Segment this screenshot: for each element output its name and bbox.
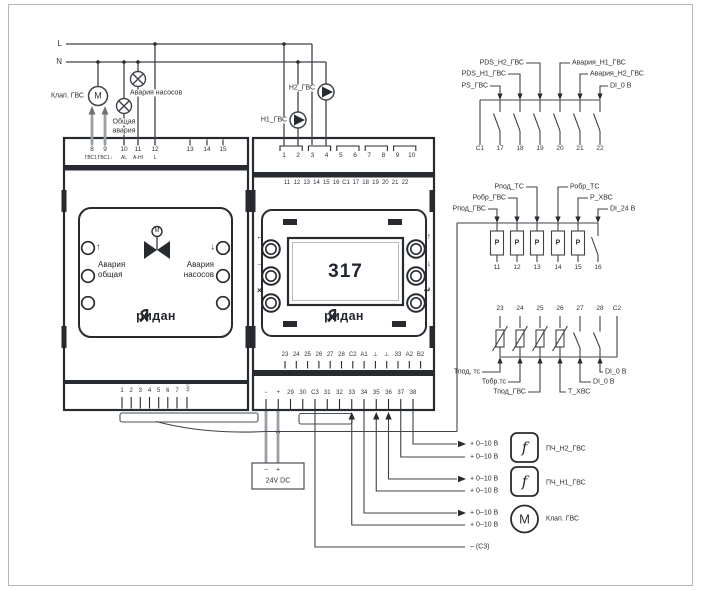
common-alarm-lamp-label-2: авария: [111, 128, 136, 135]
terminal-number: 18: [516, 146, 523, 153]
terminal-number: 6: [353, 153, 357, 160]
alarm-common-led-label-2: общая: [98, 271, 122, 279]
left-module-brand-logo: ридан: [136, 309, 176, 323]
terminal-number: 15: [574, 265, 581, 272]
pump-h1-label: H1_ГВС: [260, 117, 288, 124]
label-di-24v: DI_24 В: [610, 206, 635, 213]
label-tobr-ts: Тобр.тс: [482, 379, 506, 386]
vfd-h2-symbol: f: [522, 440, 528, 455]
terminal-number: 38: [410, 390, 417, 396]
terminal-number: 25: [536, 306, 543, 313]
right-terminal-cover-bar: [299, 414, 352, 425]
label-pobr-gvs: Робр_ГВС: [473, 195, 506, 202]
valve-output-symbol: M: [519, 513, 530, 526]
pump-alarm-lamp-label: Авария насосов: [129, 90, 183, 97]
output-signal-label: + 0–10 В: [470, 522, 498, 529]
left-terminal-cover-bar: [120, 413, 258, 422]
valve-wire-arrows: [89, 106, 109, 115]
terminal-number: 24: [516, 306, 523, 313]
terminal-number: C3: [311, 390, 319, 396]
terminal-number: 16: [594, 265, 601, 272]
terminal-number: 22: [402, 180, 409, 186]
terminal-number: 25: [304, 352, 311, 358]
output-signal-label: + 0–10 В: [470, 476, 498, 483]
terminal-number: 24: [293, 352, 300, 358]
terminal-number: 23: [282, 352, 289, 358]
terminal-number: 4: [148, 388, 151, 394]
terminal-number: 28: [596, 306, 603, 313]
pressure-sensor-letter: P: [535, 240, 540, 247]
terminal-number: 21: [392, 180, 399, 186]
terminal-number: 11: [284, 180, 290, 186]
terminal-number: L: [154, 156, 157, 161]
common-alarm-lamp-label-1: Общая: [112, 119, 137, 126]
open-arrow: ↑: [96, 243, 101, 252]
terminal-number: +: [276, 390, 280, 396]
pump-icon-h2: [318, 84, 334, 100]
label-tpod-ts: Тпод, тс: [454, 369, 480, 376]
alarm-common-led-label-1: Авария: [98, 261, 125, 269]
terminal-number: 20: [556, 146, 563, 153]
label-alarm-h2-gvs: Авария_H2_ГВС: [590, 71, 644, 78]
output-signal-label: + 0–10 В: [470, 441, 498, 448]
right-arrow-icon[interactable]: →: [256, 259, 265, 268]
terminal-number: 1: [282, 153, 286, 160]
label-p-hvs: P_ХВС: [590, 195, 613, 202]
enter-icon[interactable]: ↵: [424, 286, 431, 295]
ridan-logo-icon: [324, 309, 337, 322]
vfd-h1-symbol: f: [522, 474, 528, 489]
terminal-number: 20: [382, 180, 389, 186]
vfd-h1-label: ПЧ_Н1_ГВС: [546, 479, 586, 486]
terminal-number: 15: [323, 180, 330, 186]
terminal-number: A2: [406, 352, 413, 358]
terminal-number: 17: [352, 180, 359, 186]
pressure-sensor-letter: P: [556, 240, 561, 247]
ridan-logo-icon: [136, 309, 149, 322]
pump-h2-label: H2_ГВС: [288, 85, 316, 92]
terminal-number: 29: [287, 390, 294, 396]
terminal-number: B2: [417, 352, 424, 358]
terminal-number: 13: [303, 180, 310, 186]
alarm-pumps-led-label-2: насосов: [184, 271, 214, 279]
pressure-sensor-letter: P: [515, 240, 520, 247]
terminal-number: 7: [175, 388, 178, 394]
terminal-number: 14: [203, 147, 210, 154]
terminal-number: 5: [339, 153, 343, 160]
display-value: 317: [328, 261, 363, 283]
terminal-number: C1: [342, 180, 350, 186]
lamp-icon-pump-alarm: [131, 72, 146, 87]
up-arrow-icon[interactable]: ↑: [427, 232, 431, 241]
terminal-number: 14: [554, 265, 561, 272]
terminal-number: 17: [496, 146, 503, 153]
pressure-sensor-letter: P: [495, 240, 500, 247]
terminal-number: 8: [90, 147, 94, 154]
terminal-number: 18: [362, 180, 369, 186]
terminal-number: 12: [151, 147, 158, 154]
terminal-number: 19: [536, 146, 543, 153]
terminal-number: 30: [299, 390, 306, 396]
terminal-number: 1: [120, 388, 123, 394]
psu-minus: −: [264, 467, 268, 474]
output-signal-label: + 0–10 В: [470, 488, 498, 495]
terminal-number: 28: [338, 352, 345, 358]
lamp-icon-common-alarm: [117, 99, 132, 114]
terminal-number: AL: [121, 156, 127, 161]
psu-plus: +: [276, 467, 280, 474]
terminal-number: 3: [311, 153, 315, 160]
terminal-number: −: [264, 390, 268, 396]
wiring-diagram-page: L N Клап. ГВС M Общая авария Авария насо…: [0, 0, 701, 590]
output-signal-label: + 0–10 В: [470, 510, 498, 517]
label-pobr-ts: Робр_ТС: [570, 184, 599, 191]
line-l-label: L: [58, 40, 62, 48]
di-arrowheads: [497, 94, 602, 101]
psu-label: 24V DC: [266, 478, 291, 485]
pump-icon-h1: [290, 112, 306, 128]
terminal-number: 26: [316, 352, 323, 358]
terminal-number: C1: [476, 146, 484, 153]
terminal-number: 34: [361, 390, 368, 396]
vfd-h2-label: ПЧ_Н2_ГВС: [546, 445, 586, 452]
common-c3-label: – (С3): [470, 544, 489, 551]
terminal-number: 27: [576, 306, 583, 313]
terminal-number: 36: [385, 390, 392, 396]
label-pds-h1-gvs: PDS_H1_ГВС: [462, 71, 506, 78]
label-tpod-gvs: Тпод_ГВС: [493, 389, 526, 396]
terminal-number: 5: [157, 388, 160, 394]
terminal-number: 16: [333, 180, 340, 186]
pressure-arrowheads: [494, 217, 600, 224]
valve-motor-letter: M: [94, 92, 102, 101]
close-icon[interactable]: ×: [257, 286, 262, 295]
terminal-number: 14: [313, 180, 320, 186]
terminal-number: 11: [494, 265, 501, 272]
output-signal-label: + 0–10 В: [470, 454, 498, 461]
label-ps-gvs: PS_ГВС: [461, 83, 488, 90]
terminal-number: 11: [135, 147, 142, 154]
terminal-number: 9: [103, 147, 107, 154]
close-arrow: ↓: [211, 243, 216, 252]
terminal-number: ⊥: [384, 352, 389, 358]
pressure-sensor-letter: P: [576, 240, 581, 247]
terminal-number: 2: [296, 153, 300, 160]
terminal-number: C2: [349, 352, 357, 358]
terminal-number: 13: [186, 147, 193, 154]
output-arrowheads: [349, 412, 466, 516]
terminal-number: 37: [397, 390, 404, 396]
label-di-0v-27: DI_0 В: [593, 379, 614, 386]
terminal-number: 10: [408, 153, 415, 160]
down-arrow-icon[interactable]: ↓: [427, 259, 431, 268]
terminal-number: 26: [556, 306, 563, 313]
terminal-number: C2: [613, 306, 621, 313]
label-di-0v-28: DI_0 В: [605, 369, 626, 376]
terminal-number: 10: [120, 147, 127, 154]
terminal-number: 32: [336, 390, 343, 396]
terminal-number: 12: [513, 265, 520, 272]
terminal-number: 21: [576, 146, 583, 153]
right-module-brand-logo: ридан: [324, 309, 364, 323]
terminal-number: 4: [325, 153, 329, 160]
terminal-number: 12: [293, 180, 300, 186]
terminal-number: 23: [496, 306, 503, 313]
valve-output-label: Клап. ГВС: [546, 516, 579, 523]
terminal-number: ГВС1↓: [98, 156, 113, 161]
terminal-number: 33: [348, 390, 355, 396]
terminal-number: 35: [373, 390, 380, 396]
terminal-number: ⊥: [373, 352, 378, 358]
back-arrow-icon[interactable]: ←: [256, 232, 265, 241]
valve-actuator-label: Клап. ГВС: [51, 93, 84, 100]
terminal-number: 33: [395, 352, 402, 358]
label-t-hvs: Т_ХВС: [568, 389, 590, 396]
left-module-side-label: CAN: [185, 382, 190, 392]
terminal-number: 6: [166, 388, 169, 394]
terminal-number: 27: [327, 352, 334, 358]
terminal-number: 22: [596, 146, 603, 153]
alarm-pumps-led-label-1: Авария: [187, 261, 214, 269]
terminal-number: 8: [382, 153, 386, 160]
terminal-number: 31: [324, 390, 331, 396]
label-alarm-h1-gvs: Авария_H1_ГВС: [572, 60, 626, 67]
terminal-number: 19: [372, 180, 379, 186]
label-ppod-gvs: Рпод_ГВС: [453, 206, 486, 213]
terminal-number: 9: [396, 153, 400, 160]
terminal-number: 13: [533, 265, 540, 272]
label-pds-h2-gvs: PDS_H2_ГВС: [480, 60, 524, 67]
face-valve-motor-letter: M: [155, 228, 160, 234]
temp-arrowheads: [497, 357, 602, 364]
terminal-number: 15: [219, 147, 226, 154]
line-n-label: N: [56, 58, 62, 66]
terminal-number: 2: [129, 388, 132, 394]
schematic-canvas: [0, 0, 701, 590]
label-ppod-ts: Рпод_ТС: [494, 184, 524, 191]
terminal-number: A1: [360, 352, 367, 358]
terminal-number: A-HI: [133, 156, 143, 161]
label-di-0v-top: DI_0 В: [610, 83, 631, 90]
terminal-number: 7: [367, 153, 371, 160]
terminal-number: 3: [139, 388, 142, 394]
